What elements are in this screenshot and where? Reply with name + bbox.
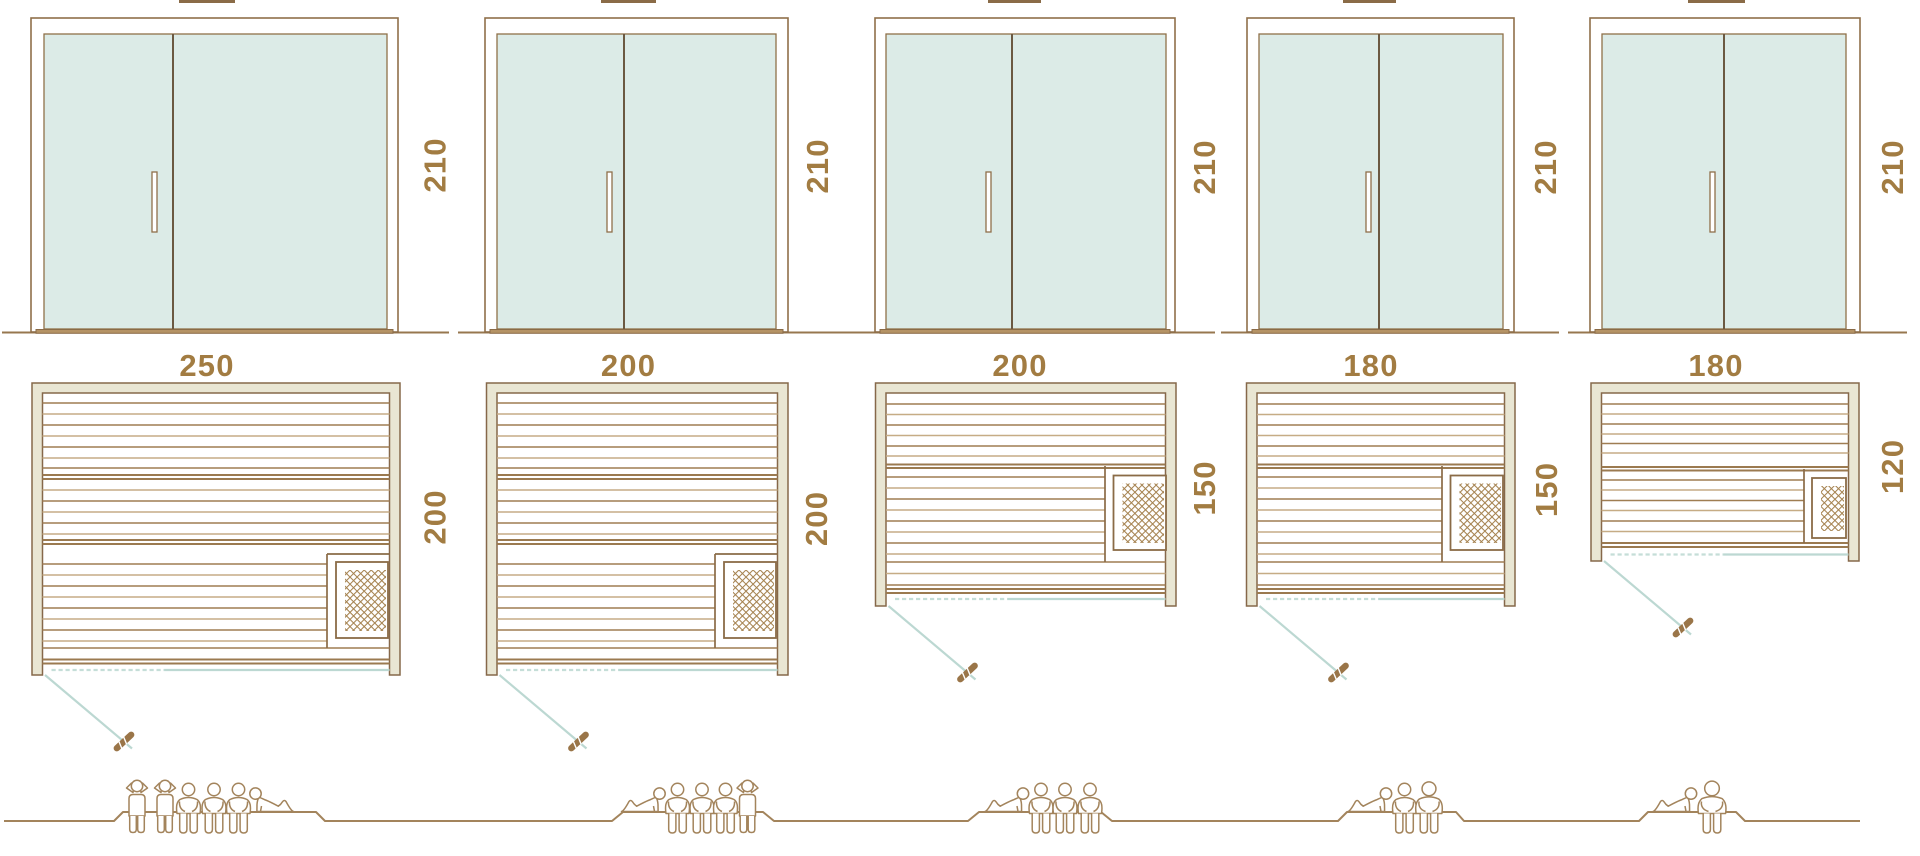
svg-text:120: 120 — [1875, 439, 1910, 494]
svg-text:210: 210 — [418, 137, 453, 192]
svg-text:200: 200 — [418, 489, 453, 544]
svg-text:210: 210 — [1187, 139, 1222, 194]
svg-text:150: 150 — [1529, 462, 1564, 517]
svg-text:200: 200 — [799, 491, 834, 546]
svg-text:210: 210 — [1875, 139, 1910, 194]
svg-text:250: 250 — [179, 348, 234, 383]
svg-text:200: 200 — [601, 348, 656, 383]
svg-text:210: 210 — [800, 138, 835, 193]
svg-text:180: 180 — [1343, 348, 1398, 383]
svg-text:200: 200 — [992, 348, 1047, 383]
svg-text:150: 150 — [1187, 460, 1222, 515]
svg-text:180: 180 — [1688, 348, 1743, 383]
svg-text:210: 210 — [1528, 139, 1563, 194]
